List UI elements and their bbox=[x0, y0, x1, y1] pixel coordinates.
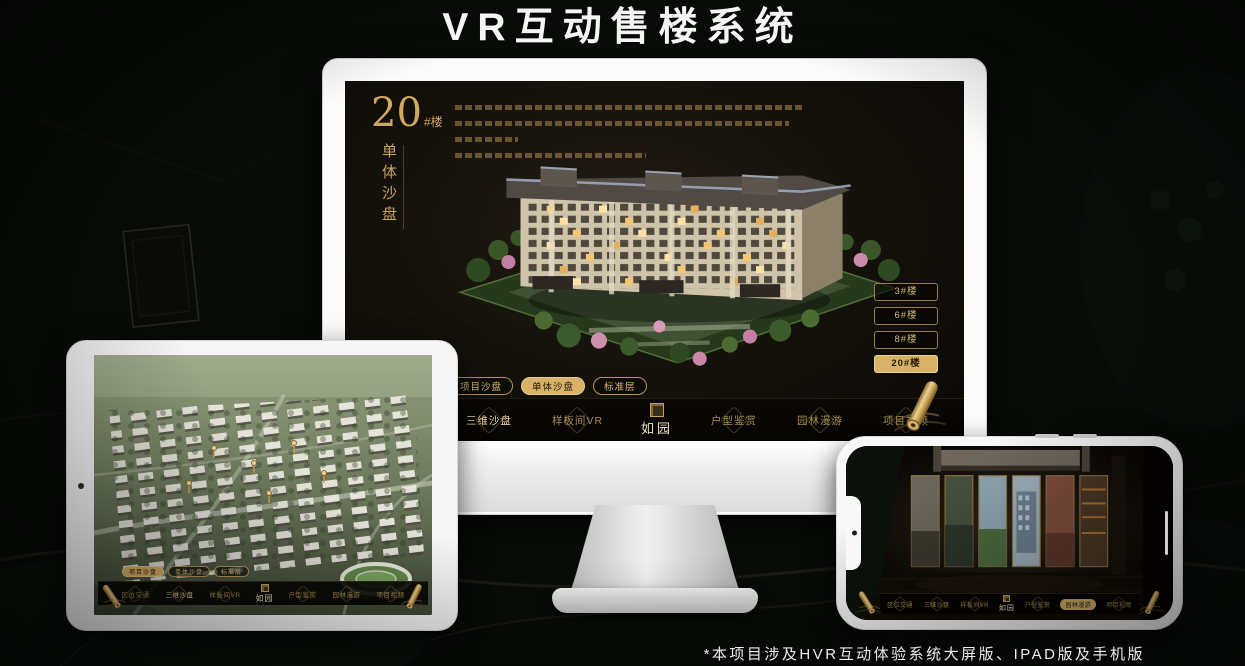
phone-nav-item-sandtable[interactable]: 三维沙盘 bbox=[923, 599, 951, 610]
tablet-scroll-ornament-left[interactable] bbox=[94, 579, 130, 615]
building-3d-render[interactable] bbox=[448, 129, 906, 381]
phone-ruyuan-logo: 如园 bbox=[999, 595, 1015, 613]
tablet-camera-icon bbox=[78, 483, 84, 489]
phone-notch bbox=[846, 496, 861, 570]
tablet-screen: 项目沙盘 单体沙盘 标准层 区位交通 三维沙盘 样板间VR 如园 户型鉴赏 园林… bbox=[94, 355, 432, 615]
phone-nav-item-location[interactable]: 区位交通 bbox=[886, 599, 914, 610]
phone-scroll-ornament-left[interactable] bbox=[851, 587, 884, 620]
ruyuan-logo: 如园 bbox=[641, 403, 673, 437]
block-title: 20#楼 bbox=[371, 91, 443, 135]
tablet-main-nav: 区位交通 三维沙盘 样板间VR 如园 户型鉴赏 园林漫游 项目视频 bbox=[98, 581, 428, 605]
floor-button-8[interactable]: 8#楼 bbox=[874, 331, 938, 349]
block-number-suffix: #楼 bbox=[424, 115, 443, 129]
phone-nav-item-project-video[interactable]: 项目视频 bbox=[1105, 599, 1133, 610]
subtab-single-sandtable[interactable]: 单体沙盘 bbox=[521, 377, 585, 395]
floor-selector: 3#楼 6#楼 8#楼 20#楼 bbox=[874, 283, 938, 373]
tablet-subtab-single-sandtable[interactable]: 单体沙盘 bbox=[168, 566, 210, 577]
tablet-ruyuan-logo: 如园 bbox=[256, 584, 274, 604]
tablet-subtab-project-sandtable[interactable]: 项目沙盘 bbox=[122, 566, 164, 577]
tablet-nav-item-showroom-vr[interactable]: 样板间VR bbox=[208, 587, 241, 601]
subtab-project-sandtable[interactable]: 项目沙盘 bbox=[449, 377, 513, 395]
phone-volume-button bbox=[1035, 434, 1059, 438]
floor-button-20[interactable]: 20#楼 bbox=[874, 355, 938, 373]
tablet-nav-item-floorplan[interactable]: 户型鉴赏 bbox=[288, 587, 318, 601]
monitor-stand-base bbox=[552, 588, 758, 613]
phone-main-nav: 区位交通 三维沙盘 样板间VR 如园 户型鉴赏 园林漫游 项目视频 bbox=[880, 593, 1139, 614]
nav-item-floorplan[interactable]: 户型鉴赏 bbox=[709, 409, 759, 432]
tablet-subtab-standard-floor[interactable]: 标准层 bbox=[214, 566, 249, 577]
logo-text: 如园 bbox=[641, 418, 673, 437]
phone-logo-seal-icon bbox=[1003, 595, 1010, 602]
phone-scroll-ornament-right[interactable] bbox=[1137, 588, 1167, 618]
block-number: 20 bbox=[371, 90, 422, 136]
phone-nav-item-floorplan[interactable]: 户型鉴赏 bbox=[1024, 599, 1052, 610]
floor-button-3[interactable]: 3#楼 bbox=[874, 283, 938, 301]
logo-seal-icon bbox=[650, 403, 664, 417]
tablet-sandtable-subtabs: 项目沙盘 单体沙盘 标准层 bbox=[122, 566, 249, 577]
nav-item-sandtable[interactable]: 三维沙盘 bbox=[464, 409, 514, 432]
phone-nav-item-showroom-vr[interactable]: 样板间VR bbox=[960, 599, 990, 610]
phone-logo-text: 如园 bbox=[999, 603, 1015, 613]
subtab-standard-floor[interactable]: 标准层 bbox=[593, 377, 647, 395]
poster-canvas: 20#楼 单体沙盘 bbox=[0, 0, 1245, 666]
page-title: VR互动售楼系统 bbox=[0, 0, 1245, 56]
tablet-nav-item-sandtable[interactable]: 三维沙盘 bbox=[164, 587, 194, 601]
phone-home-indicator bbox=[1165, 511, 1168, 555]
tablet-logo-seal-icon bbox=[261, 584, 269, 592]
tablet-scroll-ornament-right[interactable] bbox=[398, 581, 430, 613]
block-subtitle: 单体沙盘 bbox=[379, 143, 400, 227]
tablet-logo-text: 如园 bbox=[256, 593, 274, 604]
sandtable-subtabs: 项目沙盘 单体沙盘 标准层 bbox=[449, 377, 647, 395]
scroll-menu-ornament[interactable] bbox=[890, 375, 954, 439]
nav-item-showroom-vr[interactable]: 样板间VR bbox=[550, 409, 605, 432]
monitor-stand-neck bbox=[570, 505, 740, 593]
nav-item-garden-roam[interactable]: 园林漫游 bbox=[795, 409, 845, 432]
phone-nav-item-garden-roam[interactable]: 园林漫游 bbox=[1060, 599, 1096, 610]
title-divider bbox=[403, 145, 404, 229]
phone-volume-button-2 bbox=[1073, 434, 1097, 438]
tablet-device-frame: 项目沙盘 单体沙盘 标准层 区位交通 三维沙盘 样板间VR 如园 户型鉴赏 园林… bbox=[66, 340, 458, 631]
footnote-text: *本项目涉及HVR互动体验系统大屏版、IPAD版及手机版 bbox=[704, 643, 1145, 664]
tablet-nav-item-garden-roam[interactable]: 园林漫游 bbox=[332, 587, 362, 601]
phone-device-frame: 区位交通 三维沙盘 样板间VR 如园 户型鉴赏 园林漫游 项目视频 bbox=[836, 436, 1183, 630]
floor-button-6[interactable]: 6#楼 bbox=[874, 307, 938, 325]
phone-screen: 区位交通 三维沙盘 样板间VR 如园 户型鉴赏 园林漫游 项目视频 bbox=[846, 446, 1173, 620]
